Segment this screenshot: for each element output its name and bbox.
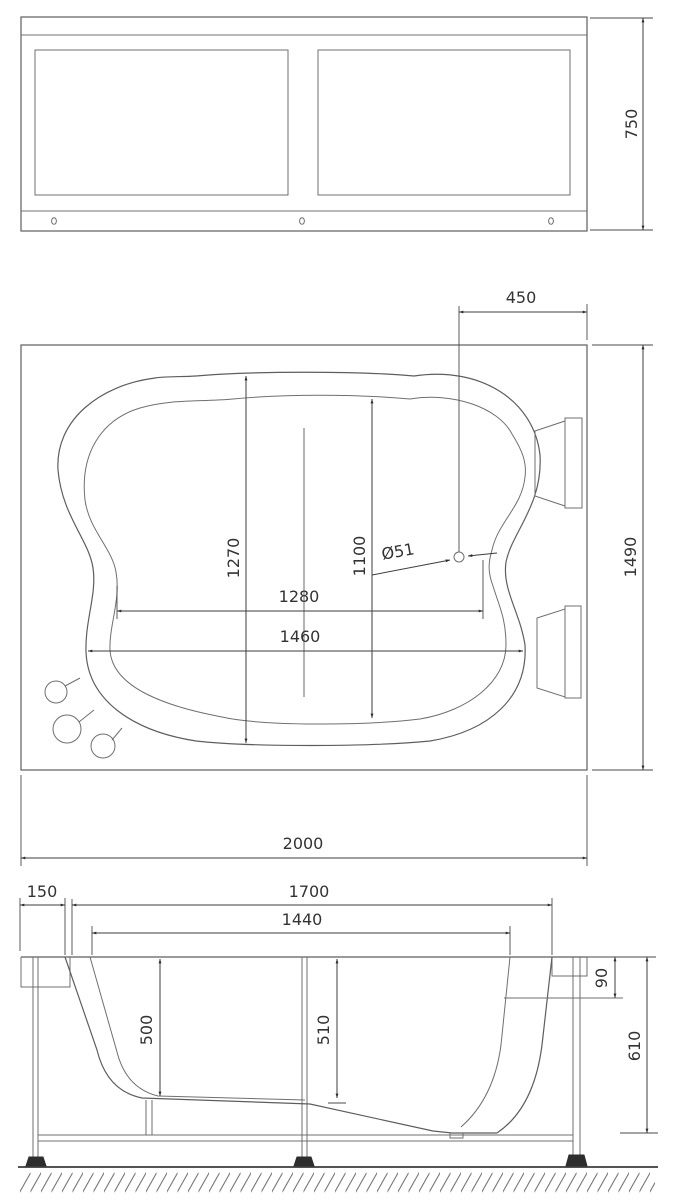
support-legs [33,957,580,1157]
plan-view: 450 1490 1270 1100 Ø51 1280 1460 2000 [21,288,653,866]
dim-label-1700: 1700 [289,882,330,901]
frame-rails [38,1135,573,1141]
dim-label-1100: 1100 [350,536,369,577]
front-view: 750 [21,17,653,231]
dim-label-500: 500 [137,1015,156,1046]
dim-label-750: 750 [622,109,641,140]
fixing-hole [52,218,57,225]
ground-hatching [20,1168,655,1194]
fixing-hole [549,218,554,225]
adjustable-feet [26,1155,587,1166]
front-panel-left [35,50,288,195]
left-lip [21,957,70,987]
side-view: 150 1700 1440 90 610 500 510 [18,882,658,1194]
control-knobs [45,678,122,758]
technical-drawing-sheet: 750 450 [0,0,677,1200]
dim-label-610: 610 [625,1031,644,1062]
dim-label-2000: 2000 [283,834,324,853]
dim-label-1280: 1280 [279,587,320,606]
dim-label-1270: 1270 [224,538,243,579]
dim-label-90: 90 [592,968,611,988]
dim-label-1460: 1460 [280,627,321,646]
front-panel-outline [21,17,587,231]
basin-outer-outline [58,372,540,745]
fixing-hole [300,218,305,225]
dim-label-drain: Ø51 [380,539,416,563]
dim-label-1440: 1440 [282,910,323,929]
headrest-upper [535,418,582,508]
tub-shell-section [65,957,623,1138]
bathtub-drawing: 750 450 [0,0,677,1200]
dim-label-510: 510 [314,1015,333,1046]
dim-label-150: 150 [27,882,58,901]
right-lip [552,957,587,976]
drain-hole [454,552,464,562]
dim-label-1490: 1490 [621,537,640,578]
headrest-lower [537,606,581,698]
front-panel-right [318,50,570,195]
dim-label-450: 450 [506,288,537,307]
